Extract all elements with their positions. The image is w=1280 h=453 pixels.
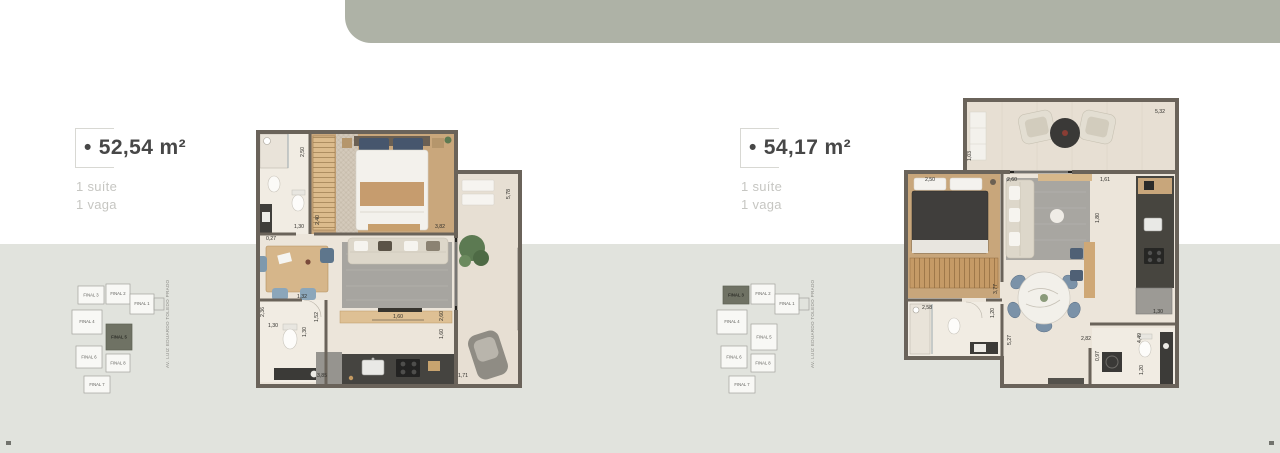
bedroom-carpet bbox=[336, 134, 358, 234]
dim: 1,32 bbox=[297, 294, 307, 300]
keyplan-label: FINAL 8 bbox=[755, 361, 771, 366]
dim: 1,61 bbox=[1100, 177, 1110, 183]
dim: 4,49 bbox=[1137, 333, 1143, 343]
dim: 3,77 bbox=[993, 284, 999, 294]
wood-deck-bench bbox=[910, 258, 998, 288]
keyplan-label: FINAL 4 bbox=[724, 319, 740, 324]
dim: 2,50 bbox=[925, 177, 935, 183]
dim: 1,30 bbox=[294, 224, 304, 230]
feature-vaga: 1 vaga bbox=[76, 196, 117, 214]
plant bbox=[445, 137, 452, 144]
keyplan-label: FINAL 1 bbox=[779, 301, 795, 306]
bullet-icon: • bbox=[84, 136, 92, 159]
dim: 1,20 bbox=[990, 308, 996, 318]
bed-bench bbox=[368, 224, 420, 231]
nightstand bbox=[432, 138, 444, 148]
dim: 1,71 bbox=[458, 373, 468, 379]
unit-features: 1 suíte 1 vaga bbox=[76, 178, 117, 214]
keyplan-annex bbox=[799, 298, 809, 310]
area-value: 54,17 m² bbox=[764, 136, 851, 159]
street-label: AV. LUIZ EDUARDO TOLEDO PRADO bbox=[165, 280, 170, 368]
area-label: •52,54 m² bbox=[84, 136, 186, 160]
dim: 1,20 bbox=[1139, 365, 1145, 375]
dim: 5,78 bbox=[506, 189, 512, 199]
keyplan-label: FINAL 2 bbox=[110, 291, 126, 296]
keyplan-label: FINAL 3 bbox=[83, 293, 99, 298]
dim: 0,27 bbox=[266, 236, 276, 242]
dim: 1,30 bbox=[1153, 309, 1163, 315]
dim: 1,80 bbox=[1095, 213, 1101, 223]
dim: 1,30 bbox=[268, 323, 278, 329]
feature-suite: 1 suíte bbox=[741, 178, 782, 196]
dim: 1,60 bbox=[393, 314, 403, 320]
feature-suite: 1 suíte bbox=[76, 178, 117, 196]
keyplan-label: FINAL 1 bbox=[134, 301, 150, 306]
dim: 2,36 bbox=[260, 307, 266, 317]
page-corner-mark bbox=[6, 441, 11, 445]
sideboard bbox=[1038, 174, 1092, 181]
keyplan-label: FINAL 2 bbox=[755, 291, 771, 296]
pet-dog bbox=[349, 376, 353, 380]
keyplan-final-5: FINAL 3 FINAL 2 FINAL 1 FINAL 4 FINAL 5 … bbox=[66, 280, 178, 406]
nightstand bbox=[342, 138, 352, 148]
dim: 2,60 bbox=[439, 311, 445, 321]
dim: 5,32 bbox=[1155, 109, 1165, 115]
dim: 2,50 bbox=[300, 147, 306, 157]
keyplan-label: FINAL 5 bbox=[756, 335, 772, 340]
dim: 1,03 bbox=[967, 151, 973, 161]
stool bbox=[1070, 248, 1083, 259]
shower bbox=[260, 134, 288, 168]
keyplan-label: FINAL 7 bbox=[89, 382, 105, 387]
dim: 2,40 bbox=[315, 215, 321, 225]
keyplan-label: FINAL 6 bbox=[81, 355, 97, 360]
keyplan-final-3: FINAL 3 FINAL 2 FINAL 1 FINAL 4 FINAL 5 … bbox=[711, 280, 823, 406]
dim: 3,85 bbox=[317, 373, 327, 379]
dim: 0,97 bbox=[1095, 351, 1101, 361]
kitchen bbox=[316, 352, 454, 384]
keyplan-label: FINAL 4 bbox=[79, 319, 95, 324]
dim: 3,82 bbox=[435, 224, 445, 230]
keyplan-label-highlighted: FINAL 5 bbox=[111, 335, 127, 340]
dining-table bbox=[266, 246, 328, 292]
area-label: •54,17 m² bbox=[749, 136, 851, 160]
sofa bbox=[1006, 180, 1034, 258]
keyplan-label-highlighted: FINAL 3 bbox=[728, 293, 744, 298]
area-value: 52,54 m² bbox=[99, 136, 186, 159]
sofa bbox=[348, 238, 448, 264]
keyplan-annex bbox=[154, 298, 164, 310]
floorplan-final-3: 5,32 1,03 2,50 2,60 1,61 1,80 3,77 1,20 … bbox=[902, 96, 1180, 396]
floorplan-final-5: 2,50 1,30 2,40 3,82 5,78 0,27 2,36 1,32 … bbox=[256, 130, 526, 390]
dim: 1,30 bbox=[302, 327, 308, 337]
unit-features: 1 suíte 1 vaga bbox=[741, 178, 782, 214]
pouf bbox=[1050, 209, 1064, 223]
bullet-icon: • bbox=[749, 136, 757, 159]
double-bed bbox=[354, 136, 430, 230]
dim: 2,58 bbox=[922, 305, 932, 311]
keyplan-label: FINAL 7 bbox=[734, 382, 750, 387]
peninsula-counter bbox=[1084, 242, 1095, 298]
feature-vaga: 1 vaga bbox=[741, 196, 782, 214]
dim: 2,82 bbox=[1081, 336, 1091, 342]
dim: 5,27 bbox=[1007, 335, 1013, 345]
header-accent-bar bbox=[345, 0, 1280, 43]
dim: 1,52 bbox=[314, 312, 320, 322]
keyplan-label: FINAL 8 bbox=[110, 361, 126, 366]
page-corner-mark bbox=[1269, 441, 1274, 445]
keyplan-label: FINAL 6 bbox=[726, 355, 742, 360]
dim: 1,60 bbox=[439, 329, 445, 339]
stool bbox=[1070, 270, 1083, 281]
floorplan-brochure-page: •52,54 m² 1 suíte 1 vaga FINAL 3 FINAL 2… bbox=[0, 0, 1280, 453]
toilet bbox=[292, 190, 305, 211]
dim: 2,60 bbox=[1007, 177, 1017, 183]
street-label: AV. LUIZ EDUARDO TOLEDO PRADO bbox=[810, 280, 815, 368]
